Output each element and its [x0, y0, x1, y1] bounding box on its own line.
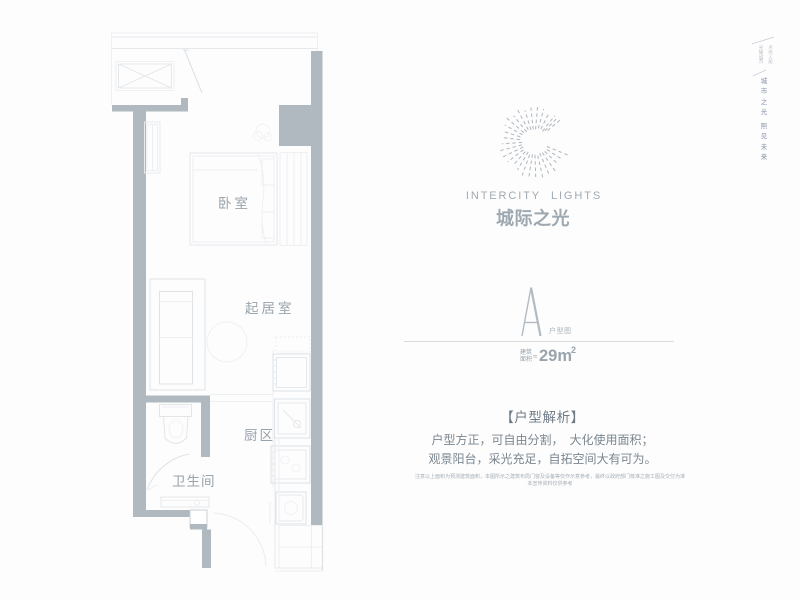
- svg-text:2: 2: [571, 345, 576, 355]
- svg-text:INTERCITY LIGHTS: INTERCITY LIGHTS: [466, 190, 602, 202]
- svg-text:≈: ≈: [533, 352, 538, 361]
- svg-text:建筑: 建筑: [520, 348, 532, 356]
- svg-text:卫生间: 卫生间: [172, 474, 216, 489]
- svg-text:城际之光: 城际之光: [496, 208, 570, 229]
- svg-text:起居室: 起居室: [245, 300, 295, 316]
- svg-text:面积: 面积: [520, 355, 532, 363]
- svg-text:29m: 29m: [539, 347, 572, 365]
- svg-text:户型图: 户型图: [549, 326, 572, 335]
- svg-text:厨区: 厨区: [244, 428, 275, 443]
- svg-text:卧室: 卧室: [218, 195, 251, 211]
